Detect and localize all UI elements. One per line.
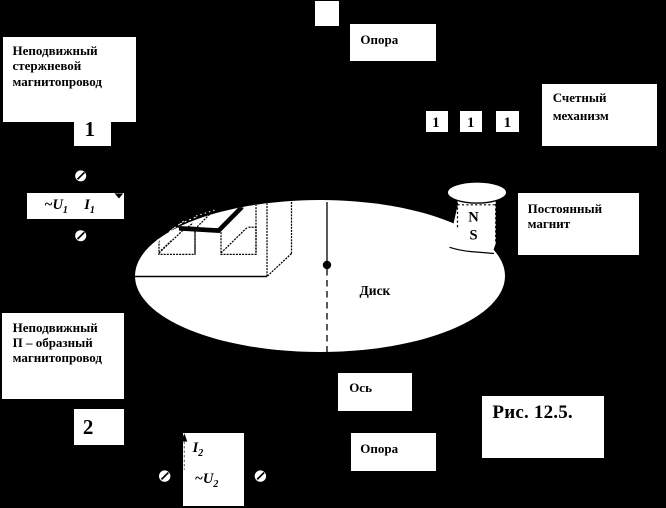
svg-text:N: N <box>468 210 479 226</box>
svg-text:Диск: Диск <box>360 283 391 298</box>
svg-text:S: S <box>469 228 477 244</box>
